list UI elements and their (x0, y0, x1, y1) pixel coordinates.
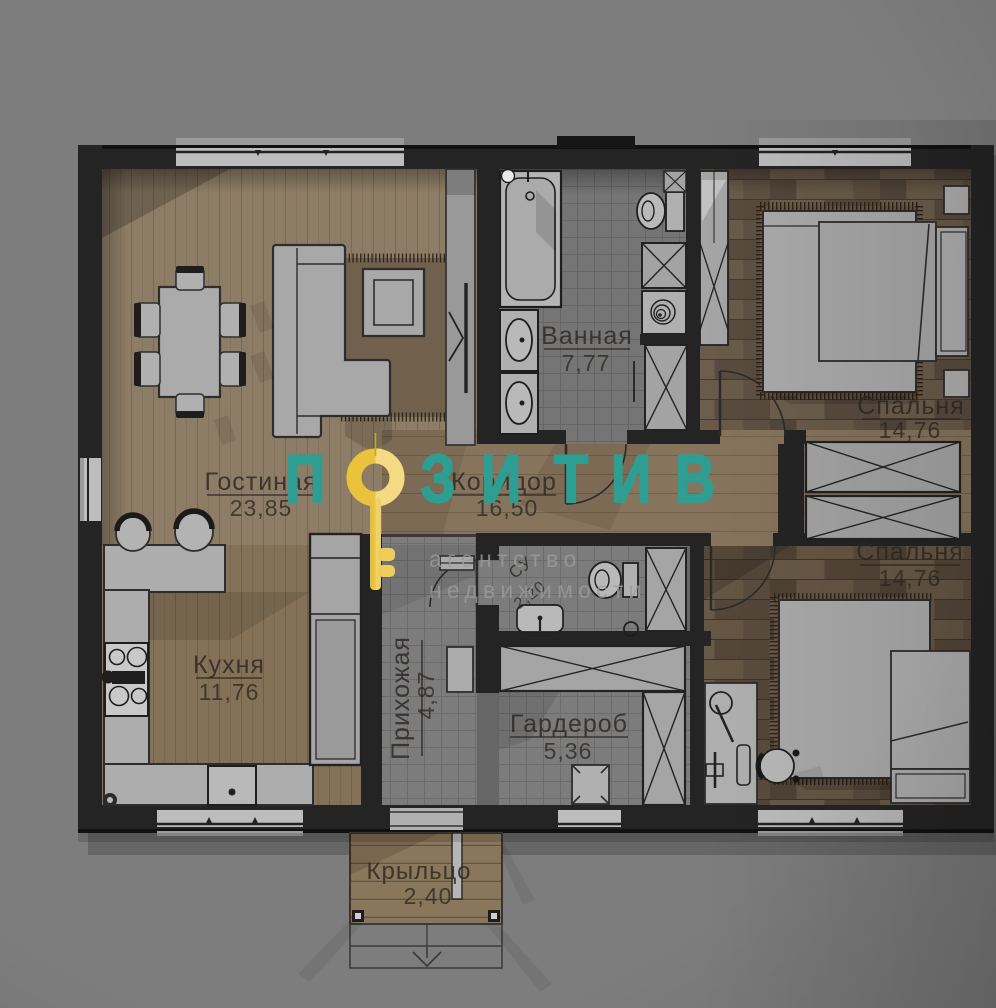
svg-text:недвижимости: недвижимости (429, 577, 647, 603)
svg-text:И: И (481, 442, 521, 517)
svg-text:З: З (421, 442, 456, 517)
svg-text:В: В (675, 442, 715, 517)
svg-text:агентство: агентство (429, 546, 582, 572)
svg-text:И: И (611, 442, 651, 517)
svg-text:П: П (285, 442, 325, 517)
svg-text:Т: Т (554, 442, 588, 517)
